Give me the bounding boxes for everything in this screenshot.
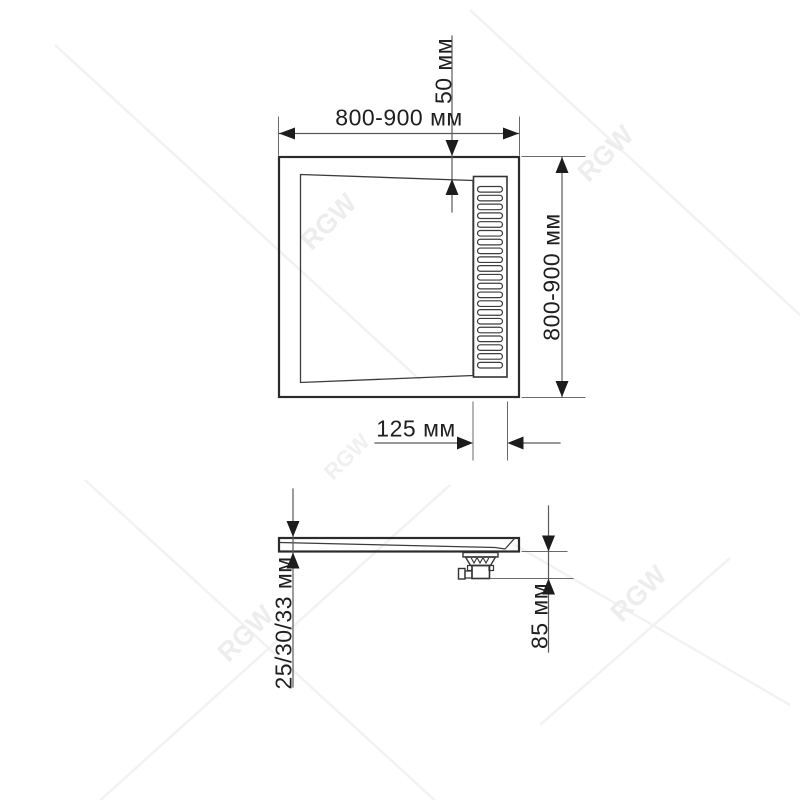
drain-funnel-rib bbox=[484, 559, 489, 564]
grate-slot bbox=[478, 292, 503, 298]
dimension-label-tray-thickness: 25/30/33 мм bbox=[271, 556, 298, 689]
watermark-logo-text: RGW bbox=[295, 187, 363, 255]
arrow-left-icon bbox=[508, 437, 524, 450]
dimension-label-trap-height: 85 мм bbox=[527, 583, 554, 649]
grate-slot bbox=[478, 301, 503, 307]
grate-slot bbox=[478, 213, 503, 219]
grate-slot bbox=[478, 274, 503, 280]
dimension-label-right-height: 800-900 мм bbox=[539, 213, 566, 340]
grate-slot bbox=[478, 362, 503, 368]
tray-profile-floor-slope bbox=[280, 539, 514, 549]
grate-slot bbox=[478, 257, 503, 263]
watermark-diagonal-line bbox=[85, 480, 440, 800]
arrow-down-icon bbox=[446, 140, 459, 156]
grate-slot bbox=[478, 283, 503, 289]
watermark-diagonal-line bbox=[55, 45, 420, 380]
arrow-up-icon bbox=[446, 179, 459, 195]
arrow-down-icon bbox=[556, 381, 569, 397]
grate-slot bbox=[478, 318, 503, 324]
technical-drawing-canvas: RGW RGW RGW RGW RGW bbox=[0, 0, 800, 800]
grate-slot bbox=[478, 248, 503, 254]
drain-funnel-rib bbox=[472, 559, 477, 564]
arrow-down-icon bbox=[287, 521, 300, 537]
grate-slot bbox=[478, 204, 503, 210]
grate-slot bbox=[478, 354, 503, 360]
grate-slot bbox=[478, 327, 503, 333]
arrow-right-icon bbox=[457, 437, 473, 450]
arrow-down-icon bbox=[542, 536, 555, 552]
grate-slot bbox=[478, 195, 503, 201]
grate-slot bbox=[478, 187, 503, 193]
grate-slot bbox=[478, 239, 503, 245]
dimension-label-grate-width: 125 мм bbox=[376, 416, 455, 443]
grate-slots bbox=[478, 187, 503, 369]
grate-slot bbox=[478, 310, 503, 316]
dimension-label-drain-offset: 50 мм bbox=[431, 38, 458, 104]
drain-outlet-pipe bbox=[459, 569, 466, 580]
grate-slot bbox=[478, 336, 503, 342]
arrow-up-icon bbox=[556, 157, 569, 173]
watermark-logo-text: RGW bbox=[572, 119, 640, 187]
drain-outlet-connector bbox=[465, 571, 472, 578]
drain-trap-body bbox=[472, 566, 490, 579]
arrow-left-icon bbox=[279, 128, 295, 140]
grate-slot bbox=[478, 230, 503, 236]
drain-funnel-rib bbox=[478, 559, 483, 564]
grate-slot bbox=[478, 345, 503, 351]
arrow-right-icon bbox=[503, 128, 519, 140]
watermark-logo-text: RGW bbox=[319, 429, 375, 485]
grate-slot bbox=[478, 266, 503, 272]
dimension-label-top-width: 800-900 мм bbox=[335, 105, 462, 132]
grate-slot bbox=[478, 222, 503, 228]
